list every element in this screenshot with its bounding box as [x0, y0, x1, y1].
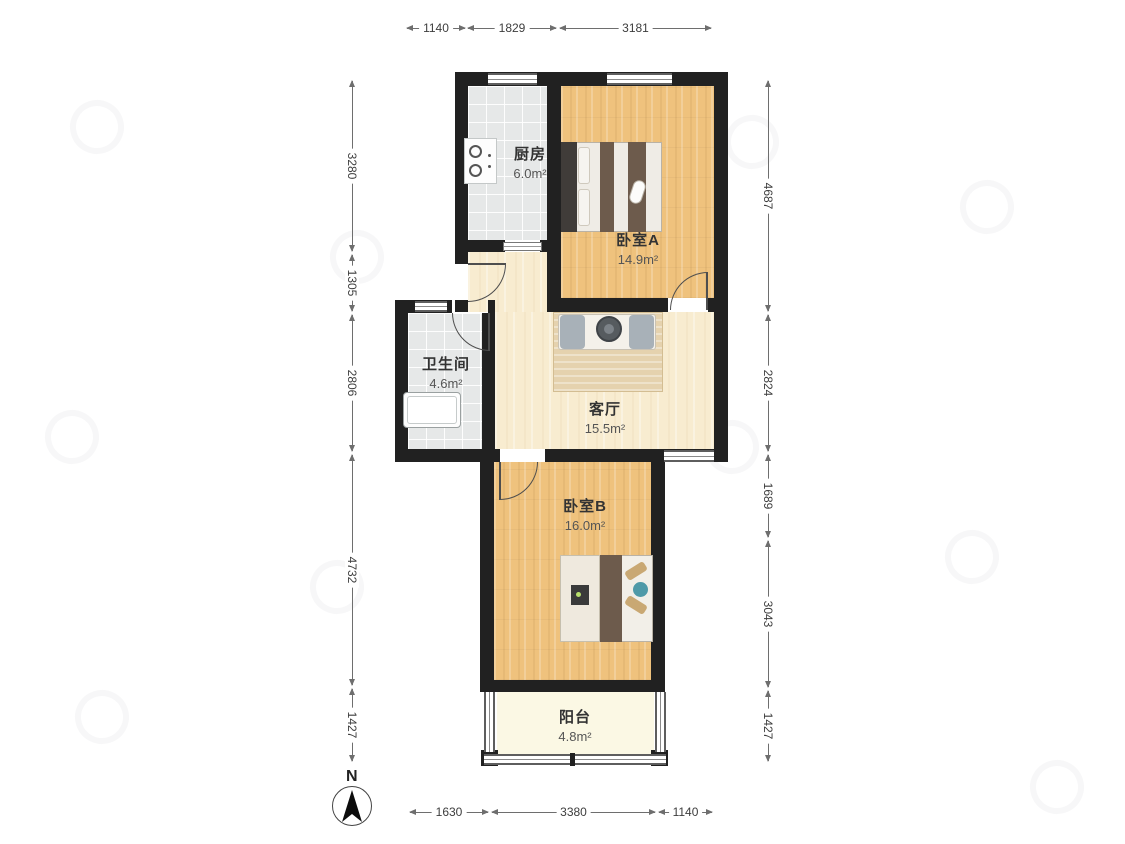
wall-bedroomB-top-right	[545, 449, 665, 462]
bathroom-name: 卫生间	[422, 353, 470, 374]
living-room-area: 15.5m²	[585, 421, 625, 436]
dim-top-1: 1140	[406, 21, 466, 35]
balcony-window-mullion	[570, 753, 575, 766]
stove-burner-icon	[469, 164, 482, 177]
bedroom-a-window	[607, 73, 672, 85]
wall-bedroomA-bottom-right	[708, 298, 728, 312]
bedroom-b-label: 卧室B 16.0m²	[563, 495, 607, 533]
floor-plan: 厨房 6.0m² 卧室A 14.9m² 卫生间 4.6m² 客厅 15.5m² …	[0, 0, 1125, 844]
bedroom-a-area: 14.9m²	[616, 252, 660, 267]
dim-bottom-3: 1140	[658, 805, 713, 819]
bed-a-blanket	[600, 142, 614, 232]
watermark-mark	[1023, 753, 1091, 821]
watermark-mark	[63, 93, 131, 161]
wall-kitchen-bottom-right	[540, 240, 561, 252]
north-label: N	[346, 768, 358, 786]
tv-indicator	[576, 592, 581, 597]
bed-a-headboard	[561, 142, 577, 232]
stove-burner-icon	[469, 145, 482, 158]
stove	[464, 138, 497, 184]
dim-left-4: 4732	[345, 454, 359, 686]
bedroom-a-door-leaf	[706, 272, 708, 310]
dim-right-2: 2824	[761, 314, 775, 452]
dim-left-2: 1305	[345, 254, 359, 312]
dim-left-1: 3280	[345, 80, 359, 252]
dim-left-5: 1427	[345, 688, 359, 762]
wall-living-right	[714, 312, 728, 462]
bathroom-area: 4.6m²	[422, 376, 470, 391]
watermark-mark	[953, 173, 1021, 241]
bedroom-a-label: 卧室A 14.9m²	[616, 229, 660, 267]
balcony-window-right	[655, 692, 666, 752]
dim-left-3: 2806	[345, 314, 359, 452]
bathroom-door-leaf	[488, 313, 490, 351]
bed-a-pillow	[578, 147, 590, 184]
bedroom-a-name: 卧室A	[616, 229, 660, 250]
kitchen-name: 厨房	[513, 143, 546, 164]
watermark-mark	[938, 523, 1006, 591]
wall-kitchen-bottom-left	[455, 240, 505, 252]
balcony-label: 阳台 4.8m²	[558, 706, 591, 744]
dim-right-4: 3043	[761, 540, 775, 688]
wall-bathroom-top-right	[488, 300, 495, 313]
bathroom-window	[415, 301, 447, 312]
wall-bedroomB-bottom	[480, 680, 665, 692]
coffee-table-center	[604, 324, 614, 334]
kitchen-area: 6.0m²	[513, 166, 546, 181]
balcony-name: 阳台	[558, 706, 591, 727]
bed-a-pillow	[578, 189, 590, 226]
kitchen-window	[488, 73, 537, 85]
sofa-cushion	[629, 315, 654, 349]
watermark-mark	[718, 108, 786, 176]
watermark-mark	[303, 553, 371, 621]
dim-top-3: 3181	[559, 21, 712, 35]
living-room-name: 客厅	[585, 398, 625, 419]
bedside-stool	[633, 582, 648, 597]
kitchen-label: 厨房 6.0m²	[513, 143, 546, 181]
wall-entry-upper	[455, 252, 468, 264]
wall-kitchen-bedroomA-divider	[547, 72, 561, 312]
balcony-window-bottom	[484, 754, 666, 765]
stove-knob	[488, 154, 491, 157]
dim-right-3: 1689	[761, 454, 775, 538]
watermark-mark	[68, 683, 136, 751]
bed-b-blanket	[600, 555, 622, 642]
north-circle	[332, 786, 372, 826]
stove-knob	[488, 165, 491, 168]
bedroom-b-door-leaf	[499, 462, 501, 500]
wall-bedroomB-left	[480, 449, 494, 692]
bedroom-b-name: 卧室B	[563, 495, 607, 516]
dim-bottom-2: 3380	[491, 805, 656, 819]
bedroom-b-area: 16.0m²	[563, 518, 607, 533]
dim-right-5: 1427	[761, 690, 775, 762]
kitchen-sliding-door	[503, 242, 542, 251]
bathroom-label: 卫生间 4.6m²	[422, 353, 470, 391]
wall-entry-lower	[455, 300, 468, 312]
bathtub-inner	[407, 396, 457, 424]
dim-bottom-1: 1630	[409, 805, 489, 819]
balcony-window-left	[484, 692, 495, 752]
dim-top-2: 1829	[467, 21, 557, 35]
north-arrow-icon	[333, 787, 373, 827]
sofa-cushion	[560, 315, 585, 349]
entry-door-leaf	[468, 263, 506, 265]
wall-bathroom-left	[395, 300, 408, 462]
wall-bedroomA-right	[714, 72, 728, 312]
living-room-label: 客厅 15.5m²	[585, 398, 625, 436]
living-room-window	[664, 450, 714, 462]
watermark-mark	[38, 403, 106, 471]
dim-right-1: 4687	[761, 80, 775, 312]
balcony-area: 4.8m²	[558, 729, 591, 744]
wall-bedroomA-bottom-left	[561, 298, 668, 312]
wall-bedroomB-right	[651, 449, 665, 692]
